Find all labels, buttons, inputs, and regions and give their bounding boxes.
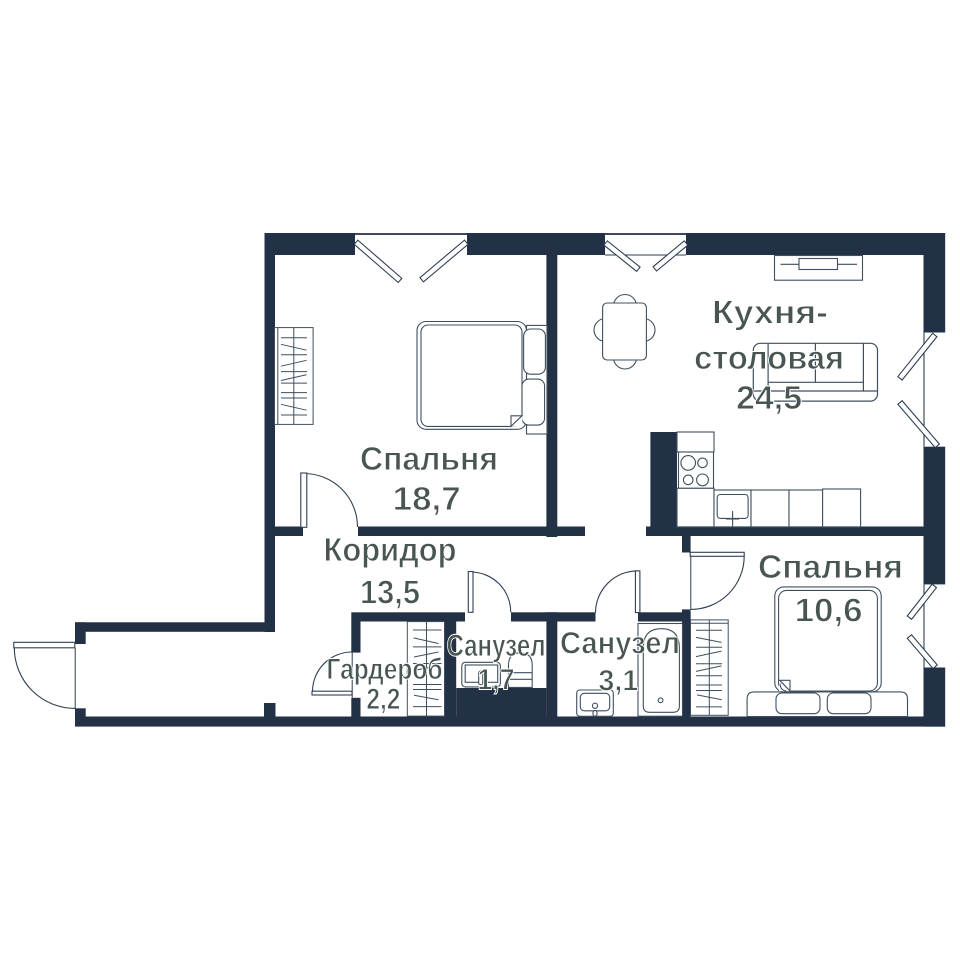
svg-text:18,7: 18,7	[393, 480, 461, 517]
svg-text:Спальня: Спальня	[758, 548, 903, 585]
svg-text:Спальня: Спальня	[360, 440, 498, 477]
svg-text:2,2: 2,2	[366, 683, 400, 716]
svg-text:Коридор: Коридор	[324, 531, 457, 568]
svg-text:столовая: столовая	[694, 339, 844, 376]
svg-text:Гардероб: Гардероб	[327, 653, 443, 686]
svg-text:Санузел: Санузел	[447, 627, 546, 663]
svg-text:10,6: 10,6	[795, 592, 863, 629]
svg-text:24,5: 24,5	[736, 379, 802, 416]
svg-text:Санузел: Санузел	[560, 625, 680, 661]
svg-text:3,1: 3,1	[598, 664, 638, 697]
svg-text:13,5: 13,5	[360, 573, 420, 610]
svg-text:1,7: 1,7	[478, 663, 515, 696]
svg-text:Кухня-: Кухня-	[712, 293, 828, 330]
